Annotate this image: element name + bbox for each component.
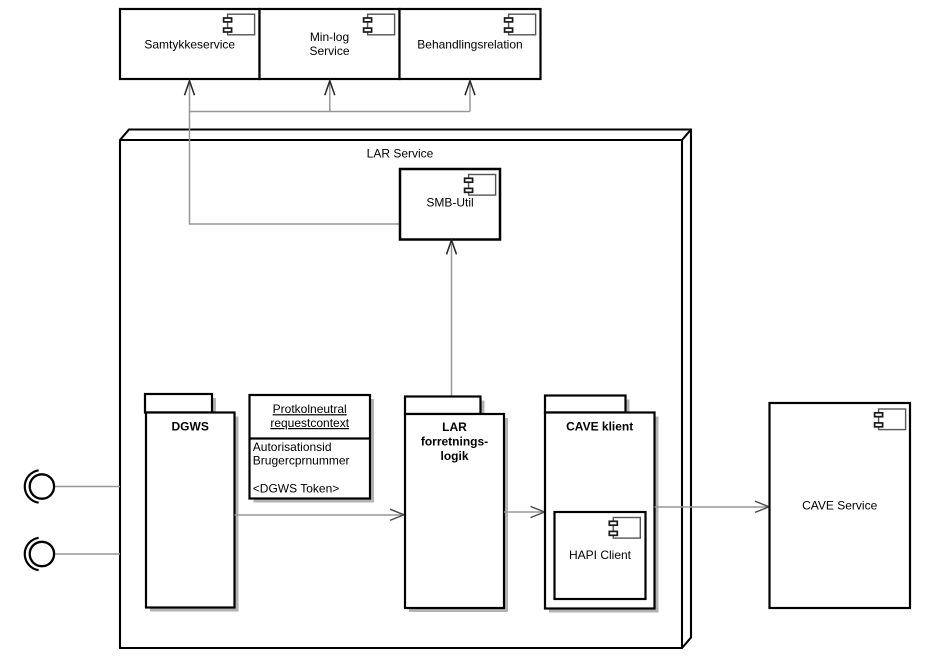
svg-text:Protkolneutral: Protkolneutral <box>273 402 347 416</box>
svg-text:CAVE klient: CAVE klient <box>566 420 633 434</box>
svg-text:Autorisationsid: Autorisationsid <box>253 440 332 454</box>
svg-text:requestcontext: requestcontext <box>270 416 349 430</box>
svg-text:LAR: LAR <box>442 420 467 434</box>
svg-text:forretnings-: forretnings- <box>421 435 488 449</box>
svg-text:Samtykkeservice: Samtykkeservice <box>144 37 235 51</box>
svg-text:CAVE Service: CAVE Service <box>802 499 877 513</box>
svg-text:SMB-Util: SMB-Util <box>426 196 473 210</box>
svg-text:Min-log: Min-log <box>310 30 349 44</box>
svg-text:HAPI Client: HAPI Client <box>569 548 632 562</box>
svg-text:DGWS: DGWS <box>172 420 209 434</box>
svg-text:<DGWS Token>: <DGWS Token> <box>253 481 339 495</box>
svg-text:Service: Service <box>309 44 349 58</box>
svg-text:LAR Service: LAR Service <box>367 147 434 161</box>
svg-text:logik: logik <box>440 449 468 463</box>
svg-text:Behandlingsrelation: Behandlingsrelation <box>417 37 522 51</box>
svg-text:Brugercprnummer: Brugercprnummer <box>253 454 350 468</box>
